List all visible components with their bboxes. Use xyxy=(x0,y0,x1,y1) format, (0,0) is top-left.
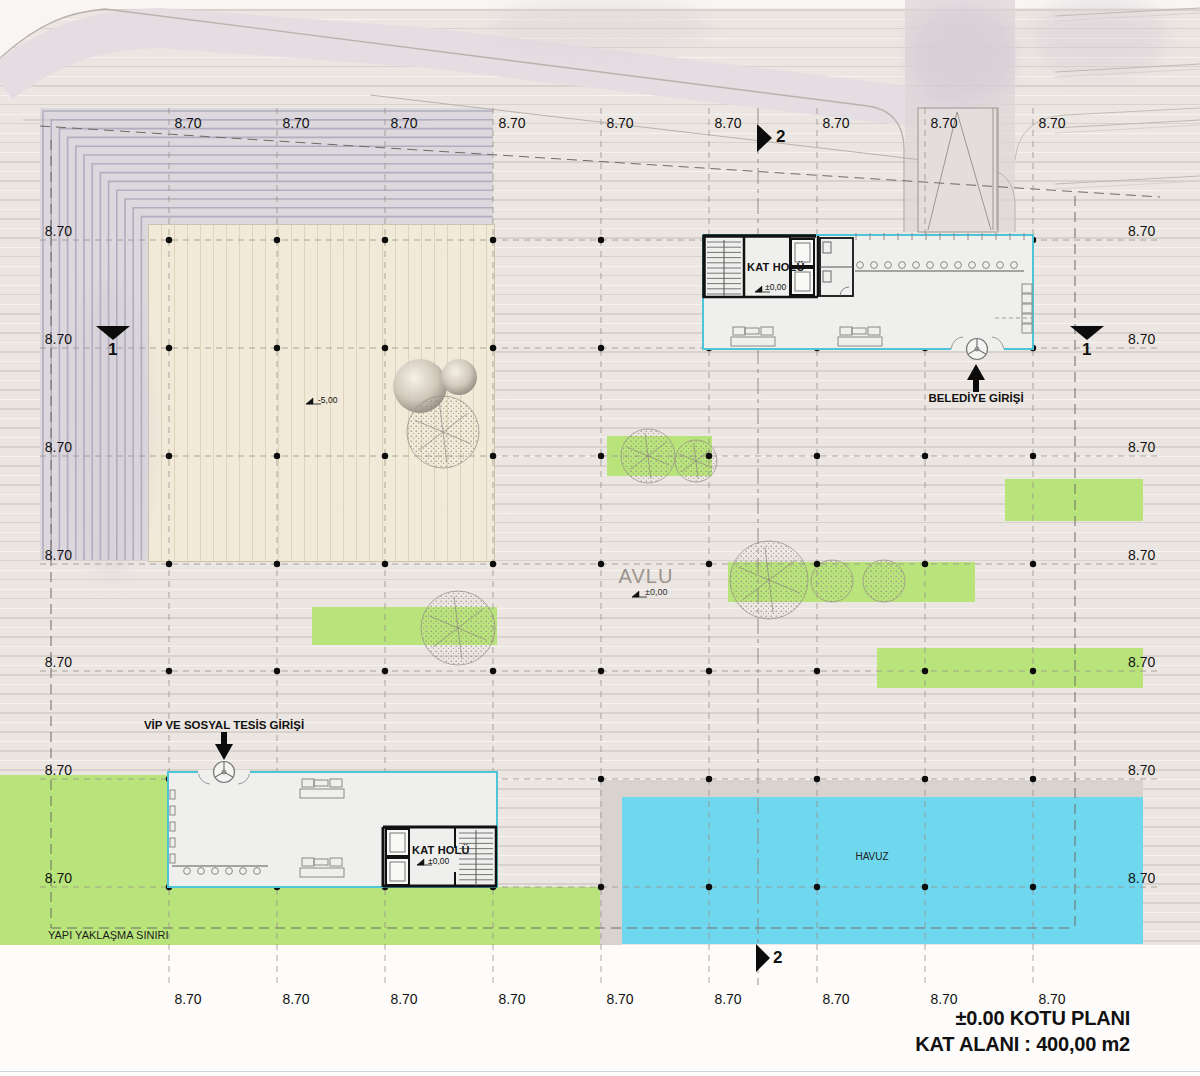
grid-dimension-label: 8.70 xyxy=(606,992,633,1007)
sheet-divider-line xyxy=(0,1071,1200,1072)
vip-entrance-label: VİP VE SOSYAL TESİS GİRİŞİ xyxy=(144,719,304,731)
grid-dimension-label: 8.70 xyxy=(174,992,201,1007)
grid-dimension-label: 8.70 xyxy=(714,116,741,131)
grid-dimension-label: 8.70 xyxy=(822,992,849,1007)
sunken-wood-deck xyxy=(148,224,495,562)
grid-dimension-label: 8.70 xyxy=(1128,224,1155,239)
section-2-label-top: 2 xyxy=(776,128,785,146)
grid-dimension-label: 8.70 xyxy=(28,763,72,778)
grid-dimension-label: 8.70 xyxy=(822,116,849,131)
pool-walkway xyxy=(600,780,1143,797)
section-1-label-left: 1 xyxy=(108,341,117,359)
grid-dimension-label: 8.70 xyxy=(28,655,72,670)
grid-dimension-label: 8.70 xyxy=(498,116,525,131)
lawn-strip-east-low xyxy=(877,648,1143,688)
section-2-label-bottom: 2 xyxy=(773,949,782,967)
grid-dimension-label: 8.70 xyxy=(390,116,417,131)
lawn-strip-center xyxy=(607,436,712,476)
belediye-entrance-label: BELEDİYE GİRİŞİ xyxy=(928,392,1023,404)
grid-dimension-label: 8.70 xyxy=(930,116,957,131)
swimming-pool xyxy=(622,797,1143,944)
lawn-strip-east xyxy=(1005,479,1143,521)
lawn-strip-mid xyxy=(728,562,975,602)
grid-dimension-label: 8.70 xyxy=(714,992,741,1007)
courtyard-label: AVLU xyxy=(619,566,674,587)
grid-dimension-label: 8.70 xyxy=(1128,871,1155,886)
grid-dimension-label: 8.70 xyxy=(282,116,309,131)
sheet-title-line1: ±0.00 KOTU PLANI xyxy=(956,1008,1130,1029)
grid-dimension-label: 8.70 xyxy=(282,992,309,1007)
grid-dimension-label: 8.70 xyxy=(1128,548,1155,563)
vip-hall-label: KAT HOLÜ xyxy=(412,845,470,857)
grid-dimension-label: 8.70 xyxy=(28,224,72,239)
grid-dimension-label: 8.70 xyxy=(606,116,633,131)
section-2-marker-bottom xyxy=(756,944,770,972)
sheet-title-line2: KAT ALANI : 400,00 m2 xyxy=(915,1034,1130,1055)
setback-line-label: YAPI YAKLAŞMA SINIRI xyxy=(48,930,168,942)
section-1-label-right: 1 xyxy=(1082,341,1091,359)
pool-label: HAVUZ xyxy=(855,852,888,863)
amphitheater-level-label: -5,00 xyxy=(318,396,337,405)
grid-dimension-label: 8.70 xyxy=(28,332,72,347)
courtyard-level-label: ±0,00 xyxy=(645,588,667,597)
grid-dimension-label: 8.70 xyxy=(1038,992,1065,1007)
grid-dimension-label: 8.70 xyxy=(1038,116,1065,131)
site-plan-drawing: AVLU ±0,00 HAVUZ -5,00 YAPI YAKLAŞMA SIN… xyxy=(0,0,1200,1076)
belediye-hall-label: KAT HOLÜ xyxy=(747,262,805,274)
grid-dimension-label: 8.70 xyxy=(930,992,957,1007)
grid-dimension-label: 8.70 xyxy=(498,992,525,1007)
grid-dimension-label: 8.70 xyxy=(174,116,201,131)
lawn-strip-west xyxy=(312,607,497,645)
grid-dimension-label: 8.70 xyxy=(1128,763,1155,778)
grid-dimension-label: 8.70 xyxy=(1128,332,1155,347)
belediye-hall-level: ±0,00 xyxy=(765,283,786,292)
grid-dimension-label: 8.70 xyxy=(28,440,72,455)
pool-walkway-left xyxy=(600,780,622,945)
grid-dimension-label: 8.70 xyxy=(1128,655,1155,670)
grid-dimension-label: 8.70 xyxy=(28,871,72,886)
grid-dimension-label: 8.70 xyxy=(390,992,417,1007)
grid-dimension-label: 8.70 xyxy=(1128,440,1155,455)
grid-dimension-label: 8.70 xyxy=(28,548,72,563)
vip-hall-level: ±0,00 xyxy=(428,857,449,866)
